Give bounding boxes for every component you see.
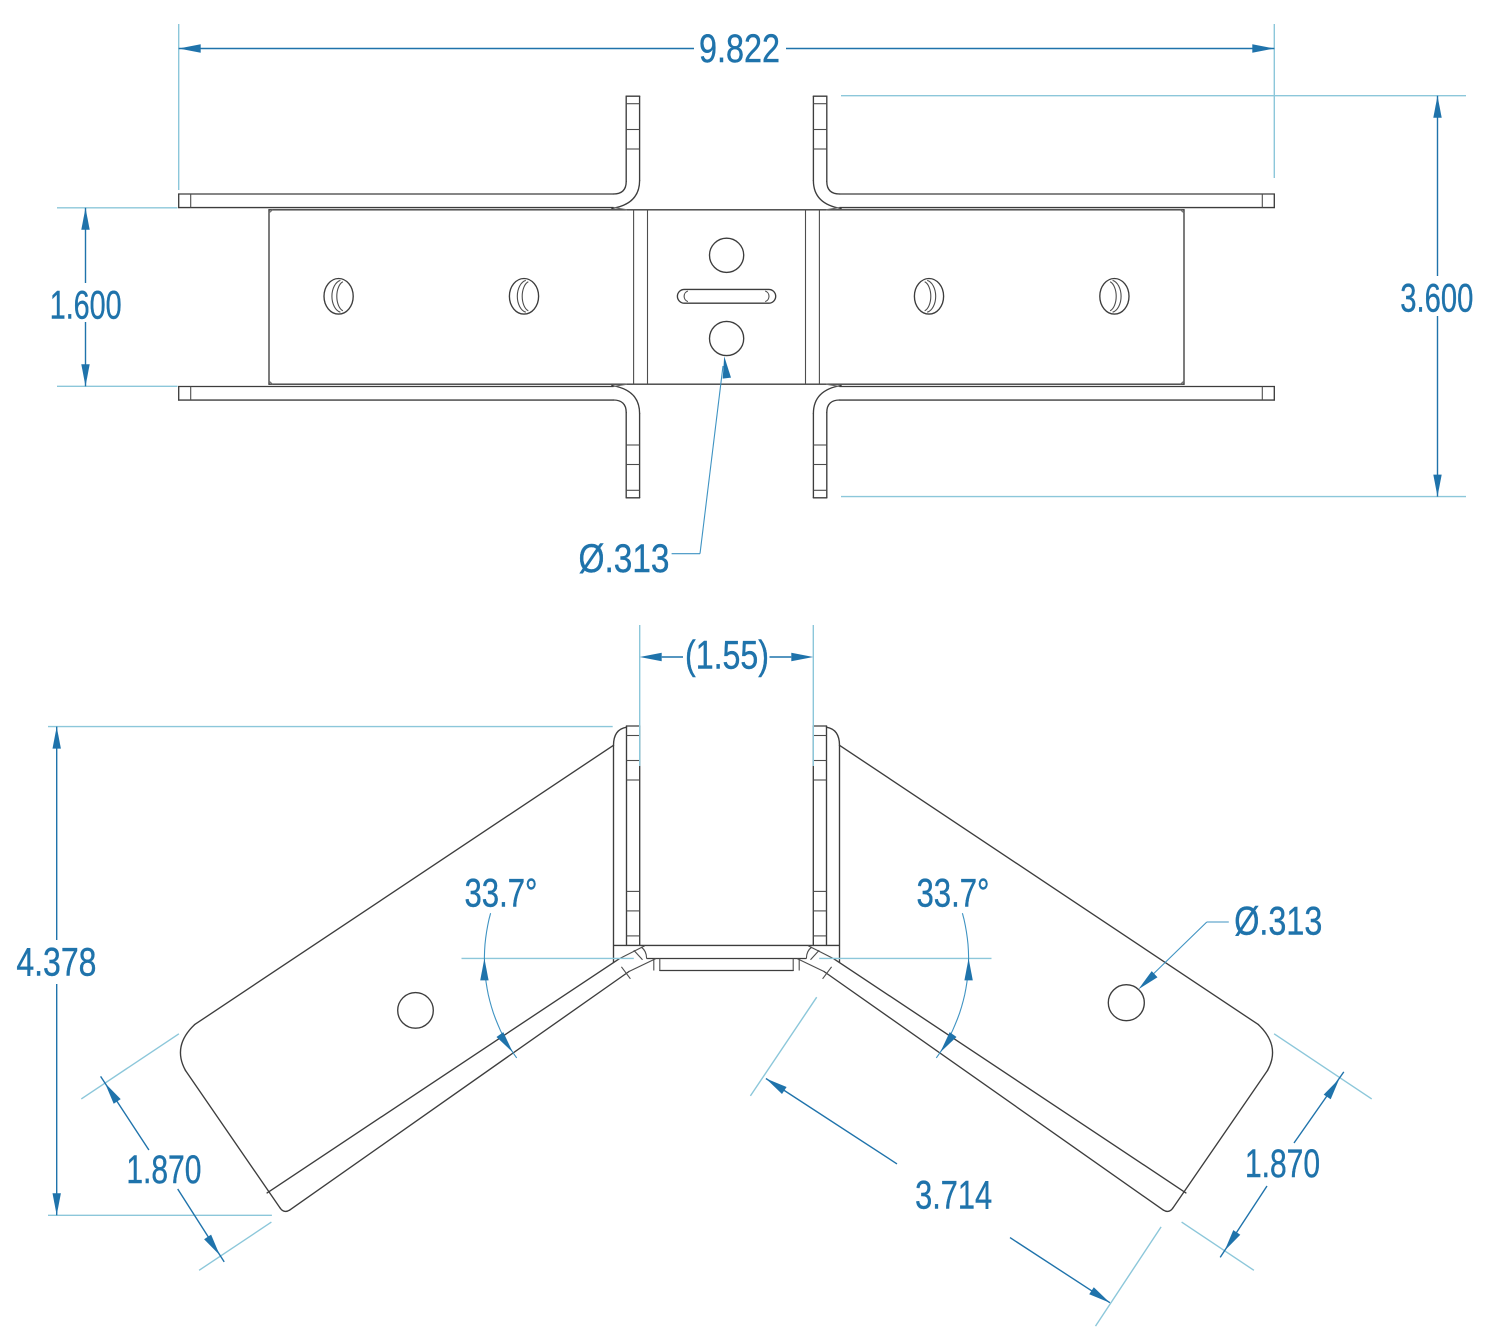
- svg-text:1.870: 1.870: [126, 1148, 201, 1192]
- svg-text:1.870: 1.870: [1245, 1142, 1320, 1186]
- svg-text:(1.55): (1.55): [685, 634, 769, 678]
- svg-text:Ø.313: Ø.313: [579, 537, 670, 581]
- svg-text:3.600: 3.600: [1400, 277, 1473, 321]
- svg-text:1.600: 1.600: [50, 284, 122, 328]
- svg-text:33.7°: 33.7°: [917, 872, 990, 916]
- svg-text:Ø.313: Ø.313: [1234, 900, 1322, 944]
- svg-text:9.822: 9.822: [699, 27, 780, 71]
- svg-text:33.7°: 33.7°: [465, 872, 538, 916]
- svg-text:4.378: 4.378: [16, 941, 96, 985]
- svg-text:3.714: 3.714: [915, 1174, 992, 1218]
